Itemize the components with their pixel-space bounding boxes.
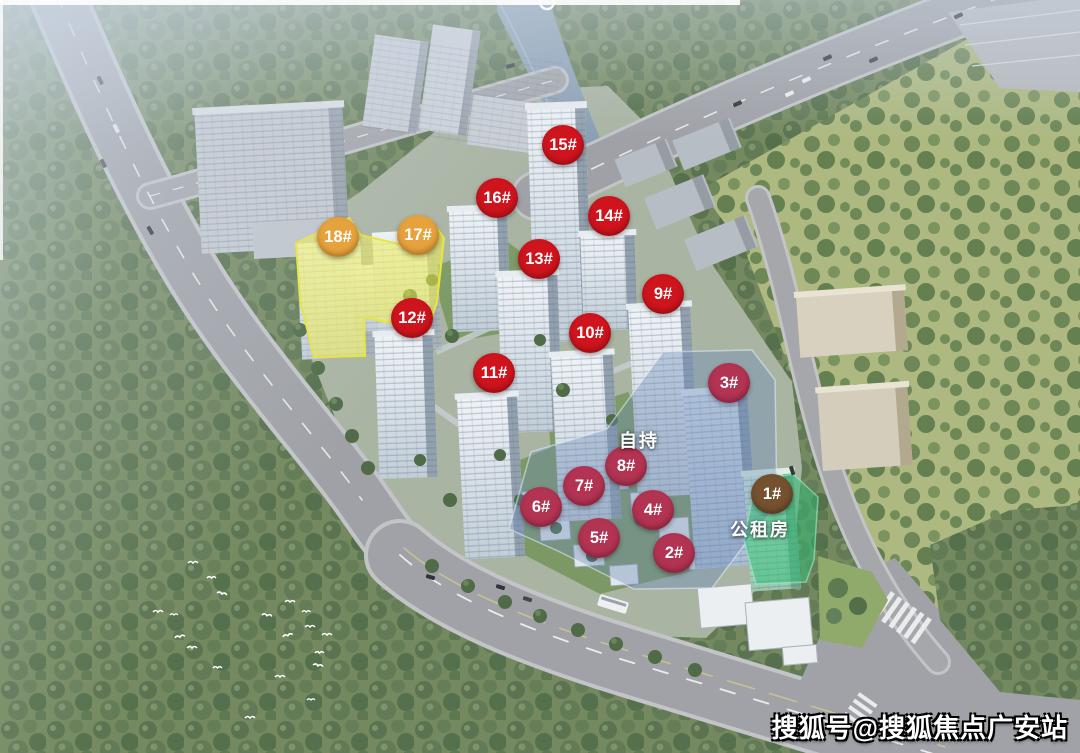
aerial-render [0,0,1080,753]
watermark: 搜狐号@搜狐焦点广安站 [772,708,1068,745]
atmosphere [0,0,1080,753]
site-plan-image: 1#2#3#4#5#6#7#8#9#10#11#12#13#14#15#16#1… [0,0,1080,753]
